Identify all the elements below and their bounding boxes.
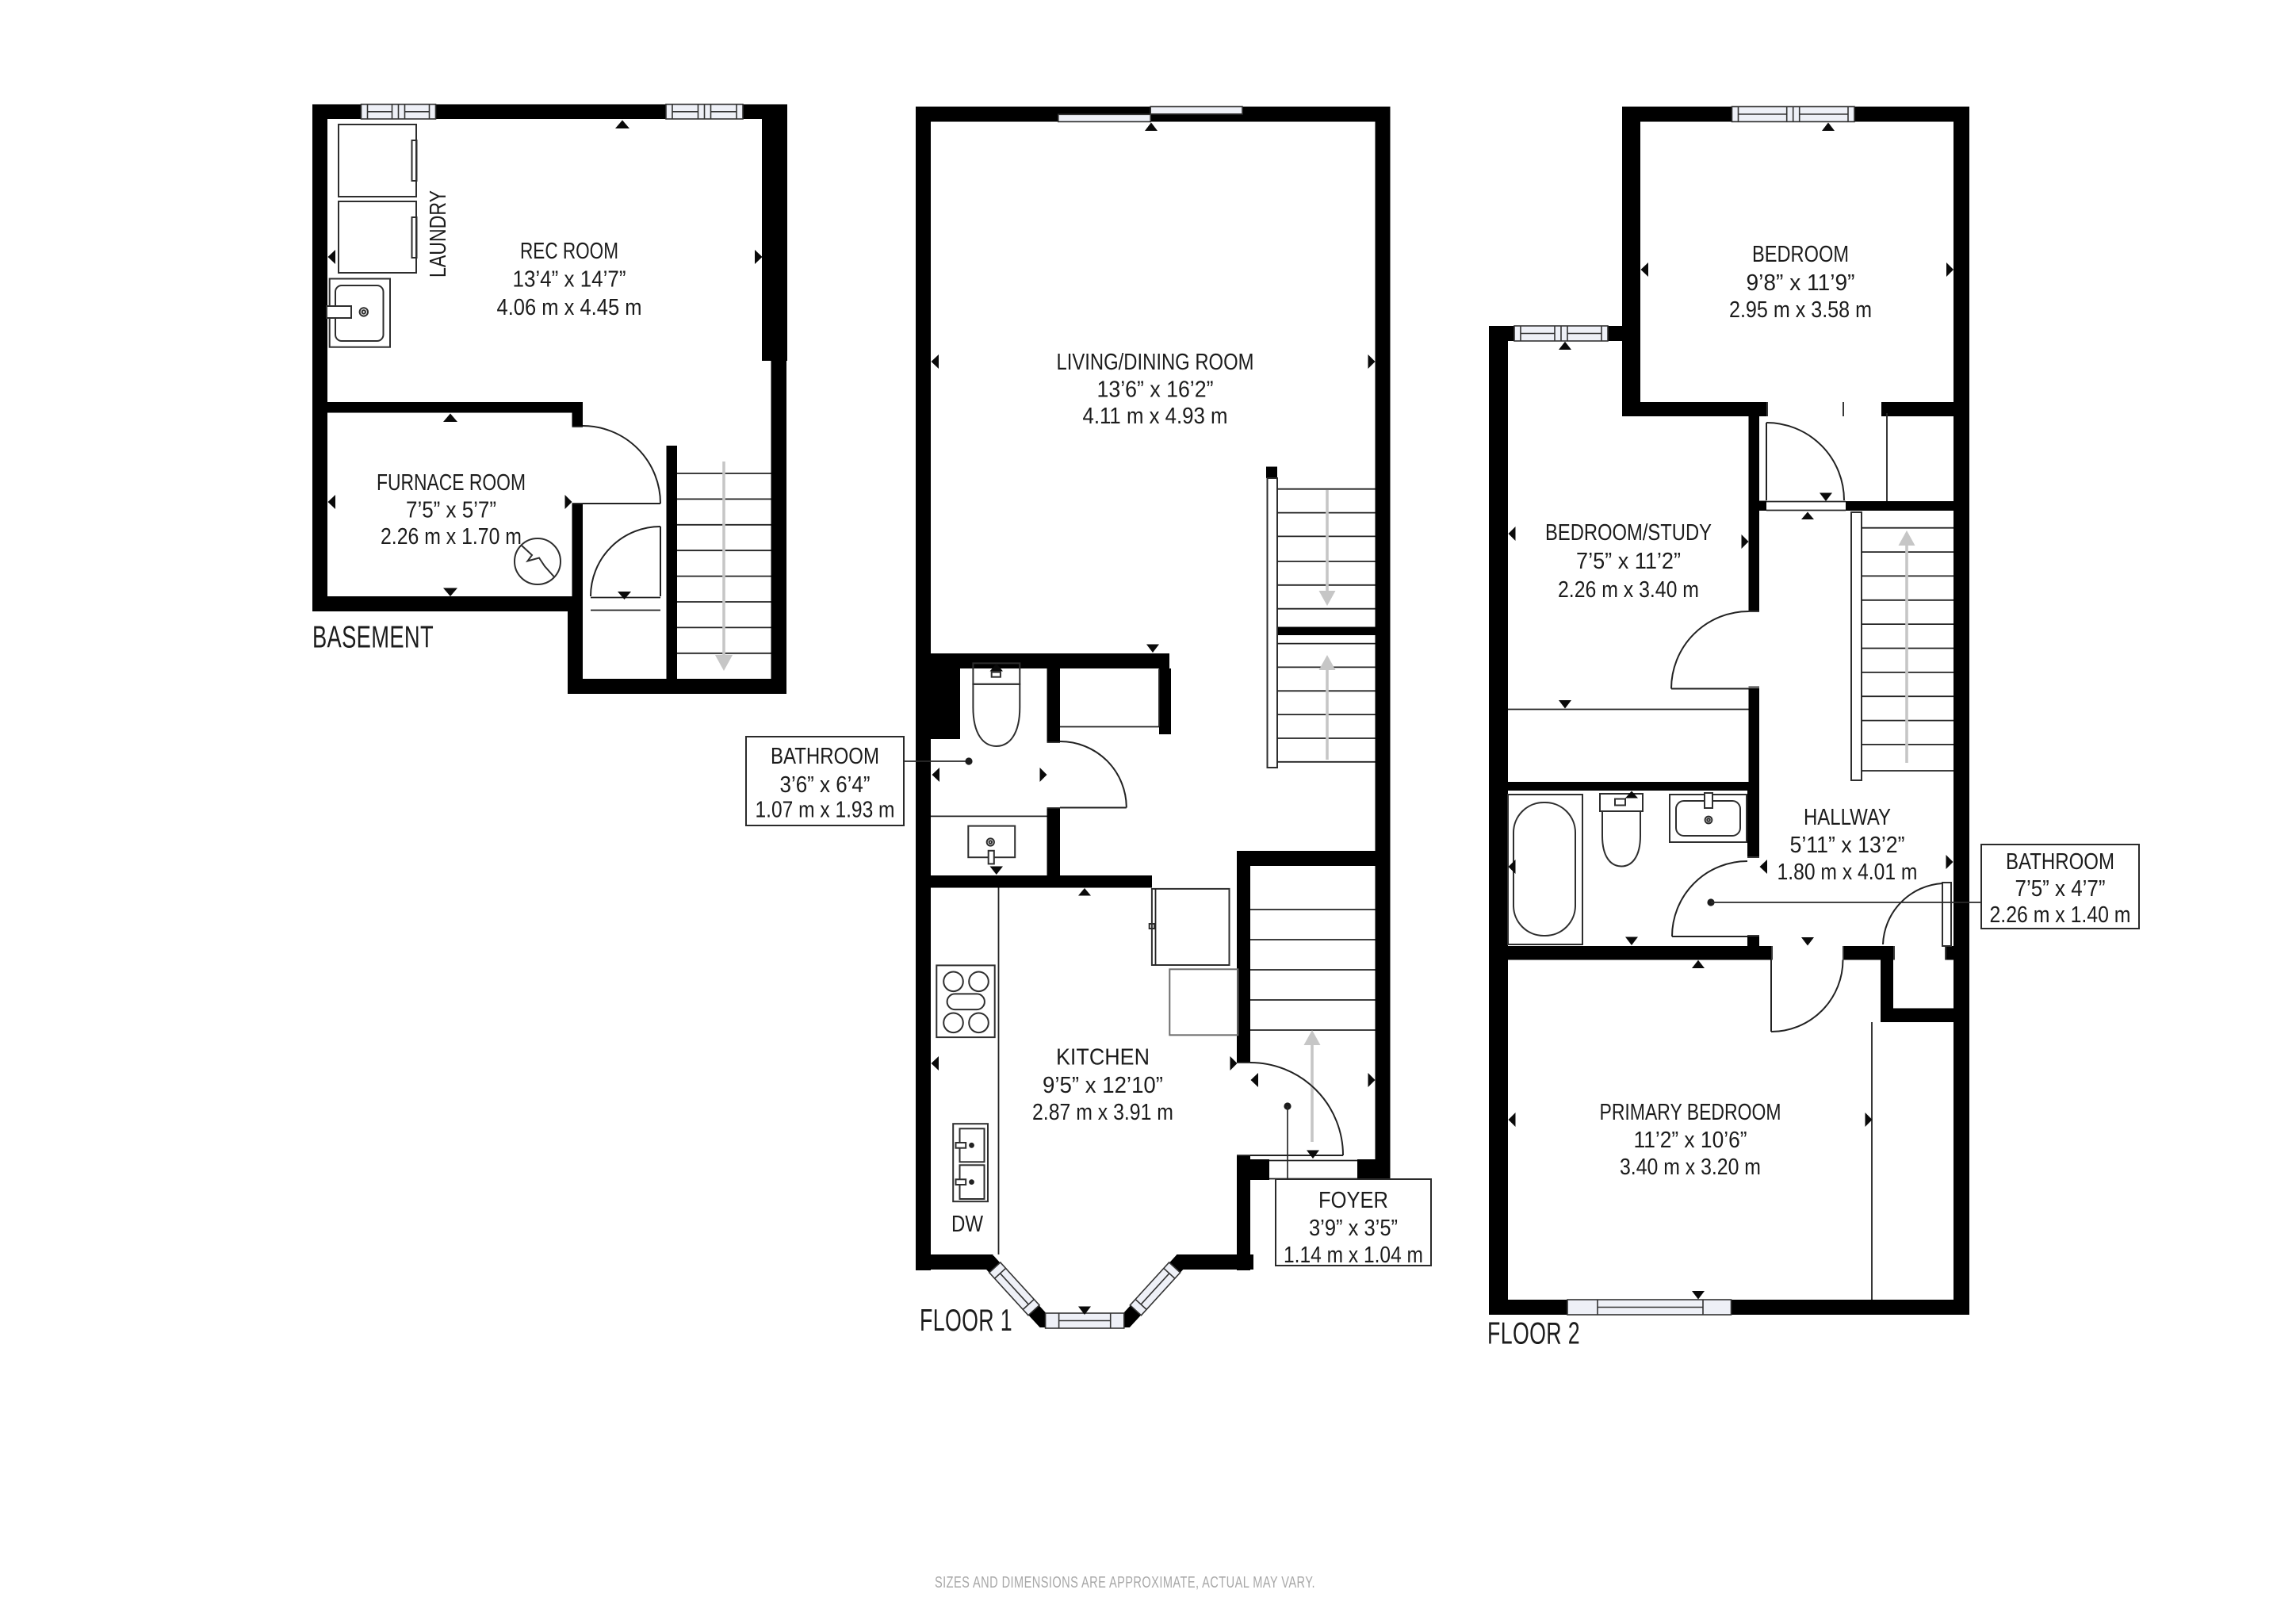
svg-text:9’5” x 12’10”: 9’5” x 12’10” xyxy=(1043,1073,1163,1098)
svg-text:11’2” x 10’6”: 11’2” x 10’6” xyxy=(1634,1128,1747,1153)
svg-text:KITCHEN: KITCHEN xyxy=(1056,1044,1150,1070)
svg-text:DW: DW xyxy=(951,1212,984,1237)
svg-text:9’8” x 11’9”: 9’8” x 11’9” xyxy=(1747,270,1855,296)
svg-text:2.26 m x 3.40 m: 2.26 m x 3.40 m xyxy=(1558,577,1699,603)
svg-text:13’6” x 16’2”: 13’6” x 16’2” xyxy=(1097,377,1214,403)
svg-text:3’9” x 3’5”: 3’9” x 3’5” xyxy=(1309,1216,1398,1241)
svg-text:4.06 m x 4.45 m: 4.06 m x 4.45 m xyxy=(497,295,642,320)
svg-text:SIZES AND DIMENSIONS ARE APPRO: SIZES AND DIMENSIONS ARE APPROXIMATE, AC… xyxy=(935,1574,1315,1591)
svg-text:BATHROOM: BATHROOM xyxy=(2006,849,2114,875)
svg-text:7’5” x 4’7”: 7’5” x 4’7” xyxy=(2015,876,2106,902)
svg-text:FURNACE ROOM: FURNACE ROOM xyxy=(377,470,526,496)
svg-text:7’5” x 11’2”: 7’5” x 11’2” xyxy=(1576,549,1681,574)
svg-text:3.40 m x 3.20 m: 3.40 m x 3.20 m xyxy=(1620,1155,1761,1180)
svg-text:2.26 m x 1.70 m: 2.26 m x 1.70 m xyxy=(381,524,522,550)
svg-text:2.95 m x 3.58 m: 2.95 m x 3.58 m xyxy=(1729,297,1872,323)
svg-text:2.87 m x 3.91 m: 2.87 m x 3.91 m xyxy=(1032,1100,1173,1125)
svg-text:FLOOR 1: FLOOR 1 xyxy=(920,1304,1012,1338)
svg-text:13’4” x 14’7”: 13’4” x 14’7” xyxy=(513,267,626,293)
svg-text:4.11 m x 4.93 m: 4.11 m x 4.93 m xyxy=(1083,404,1228,429)
svg-text:REC ROOM: REC ROOM xyxy=(520,239,618,264)
svg-text:FOYER: FOYER xyxy=(1318,1188,1388,1213)
svg-text:LAUNDRY: LAUNDRY xyxy=(426,190,451,278)
svg-text:1.80 m x 4.01 m: 1.80 m x 4.01 m xyxy=(1777,860,1918,885)
svg-text:2.26 m x 1.40 m: 2.26 m x 1.40 m xyxy=(1990,902,2131,928)
svg-text:PRIMARY BEDROOM: PRIMARY BEDROOM xyxy=(1600,1100,1781,1125)
svg-text:BATHROOM: BATHROOM xyxy=(771,744,879,769)
svg-text:BEDROOM/STUDY: BEDROOM/STUDY xyxy=(1545,520,1712,546)
svg-text:5’11” x 13’2”: 5’11” x 13’2” xyxy=(1790,833,1905,858)
svg-text:LIVING/DINING ROOM: LIVING/DINING ROOM xyxy=(1057,350,1254,375)
svg-text:FLOOR 2: FLOOR 2 xyxy=(1487,1317,1580,1351)
svg-text:1.14 m x 1.04 m: 1.14 m x 1.04 m xyxy=(1284,1243,1423,1268)
svg-text:BASEMENT: BASEMENT xyxy=(312,621,434,655)
svg-text:HALLWAY: HALLWAY xyxy=(1804,805,1891,830)
svg-text:1.07 m x 1.93 m: 1.07 m x 1.93 m xyxy=(756,798,895,823)
svg-text:3’6” x 6’4”: 3’6” x 6’4” xyxy=(780,772,871,798)
svg-text:7’5” x 5’7”: 7’5” x 5’7” xyxy=(406,498,496,523)
svg-text:BEDROOM: BEDROOM xyxy=(1752,242,1849,267)
